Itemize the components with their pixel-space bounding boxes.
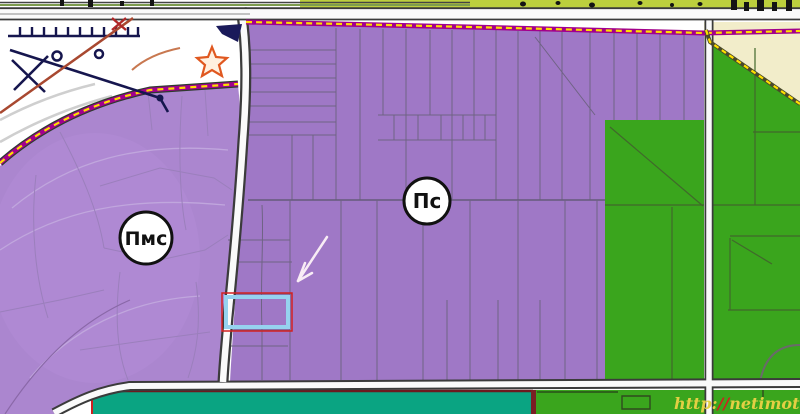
- map-canvas: Пмс Пс http://netimoti.net: [0, 0, 800, 414]
- node-dot: [157, 95, 164, 102]
- zoning-map: Пмс Пс http://netimoti.net: [0, 0, 800, 414]
- watermark: http://netimoti.net: [674, 394, 800, 413]
- zone-label-pmc-text: Пмс: [125, 228, 168, 250]
- zone-label-pmc: Пмс: [120, 212, 172, 264]
- zone-label-ps-text: Пс: [413, 189, 442, 213]
- zone-teal-strip: [92, 390, 533, 414]
- zone-label-ps: Пс: [404, 178, 450, 224]
- watermark-url: http://netimoti.net: [674, 394, 800, 413]
- maroon-divider: [531, 390, 536, 414]
- zone-green-west: [605, 120, 704, 382]
